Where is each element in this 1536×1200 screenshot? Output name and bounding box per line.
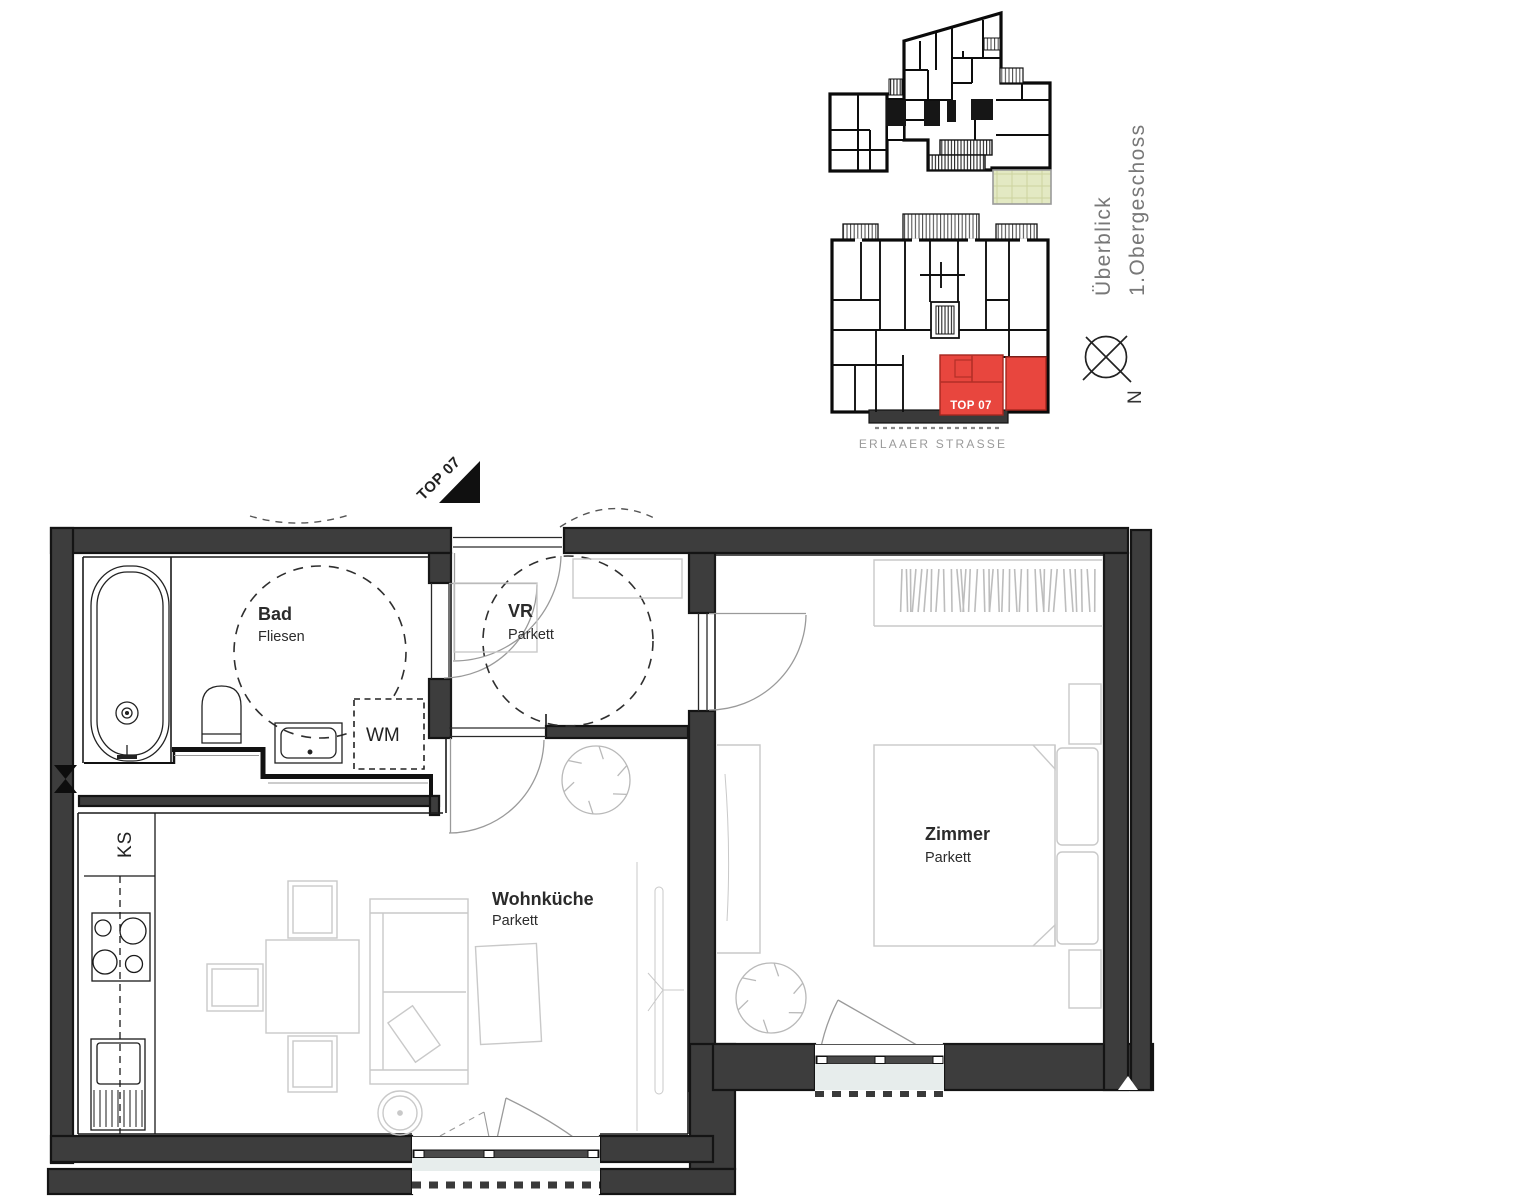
svg-text:Wohnküche: Wohnküche	[492, 889, 594, 909]
svg-text:TOP 07: TOP 07	[950, 400, 992, 412]
svg-text:Parkett: Parkett	[925, 850, 971, 866]
svg-text:VR: VR	[508, 601, 533, 621]
svg-text:KS: KS	[115, 831, 136, 858]
svg-text:N: N	[1125, 390, 1146, 404]
svg-text:Parkett: Parkett	[508, 627, 554, 643]
svg-text:WM: WM	[366, 725, 400, 746]
svg-text:1.Obergeschoss: 1.Obergeschoss	[1126, 123, 1149, 296]
svg-text:Fliesen: Fliesen	[258, 629, 305, 645]
svg-text:Bad: Bad	[258, 604, 292, 624]
svg-text:Überblick: Überblick	[1092, 196, 1115, 296]
svg-text:ERLAAER STRASSE: ERLAAER STRASSE	[859, 437, 1007, 451]
svg-text:Zimmer: Zimmer	[925, 824, 990, 844]
svg-text:Parkett: Parkett	[492, 913, 538, 929]
